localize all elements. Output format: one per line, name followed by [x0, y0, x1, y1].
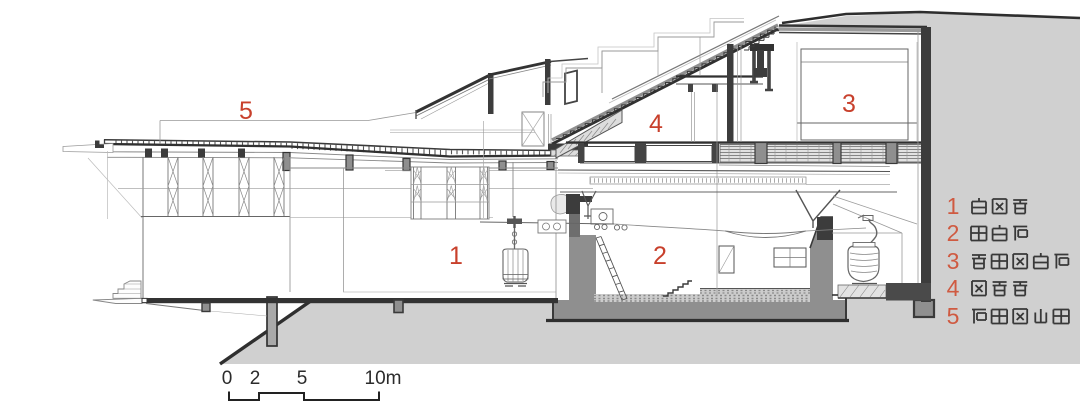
svg-text:3: 3: [947, 248, 960, 274]
svg-text:5: 5: [239, 97, 253, 125]
svg-text:2: 2: [653, 242, 667, 270]
svg-text:1: 1: [449, 242, 463, 270]
svg-text:2: 2: [947, 220, 960, 246]
svg-text:4: 4: [947, 275, 960, 301]
svg-text:4: 4: [649, 110, 663, 138]
svg-text:10m: 10m: [365, 368, 402, 389]
svg-text:1: 1: [947, 193, 960, 219]
svg-text:5: 5: [297, 368, 308, 389]
svg-text:3: 3: [842, 90, 856, 118]
svg-text:2: 2: [250, 368, 261, 389]
svg-text:0: 0: [222, 368, 233, 389]
svg-text:5: 5: [947, 303, 960, 329]
